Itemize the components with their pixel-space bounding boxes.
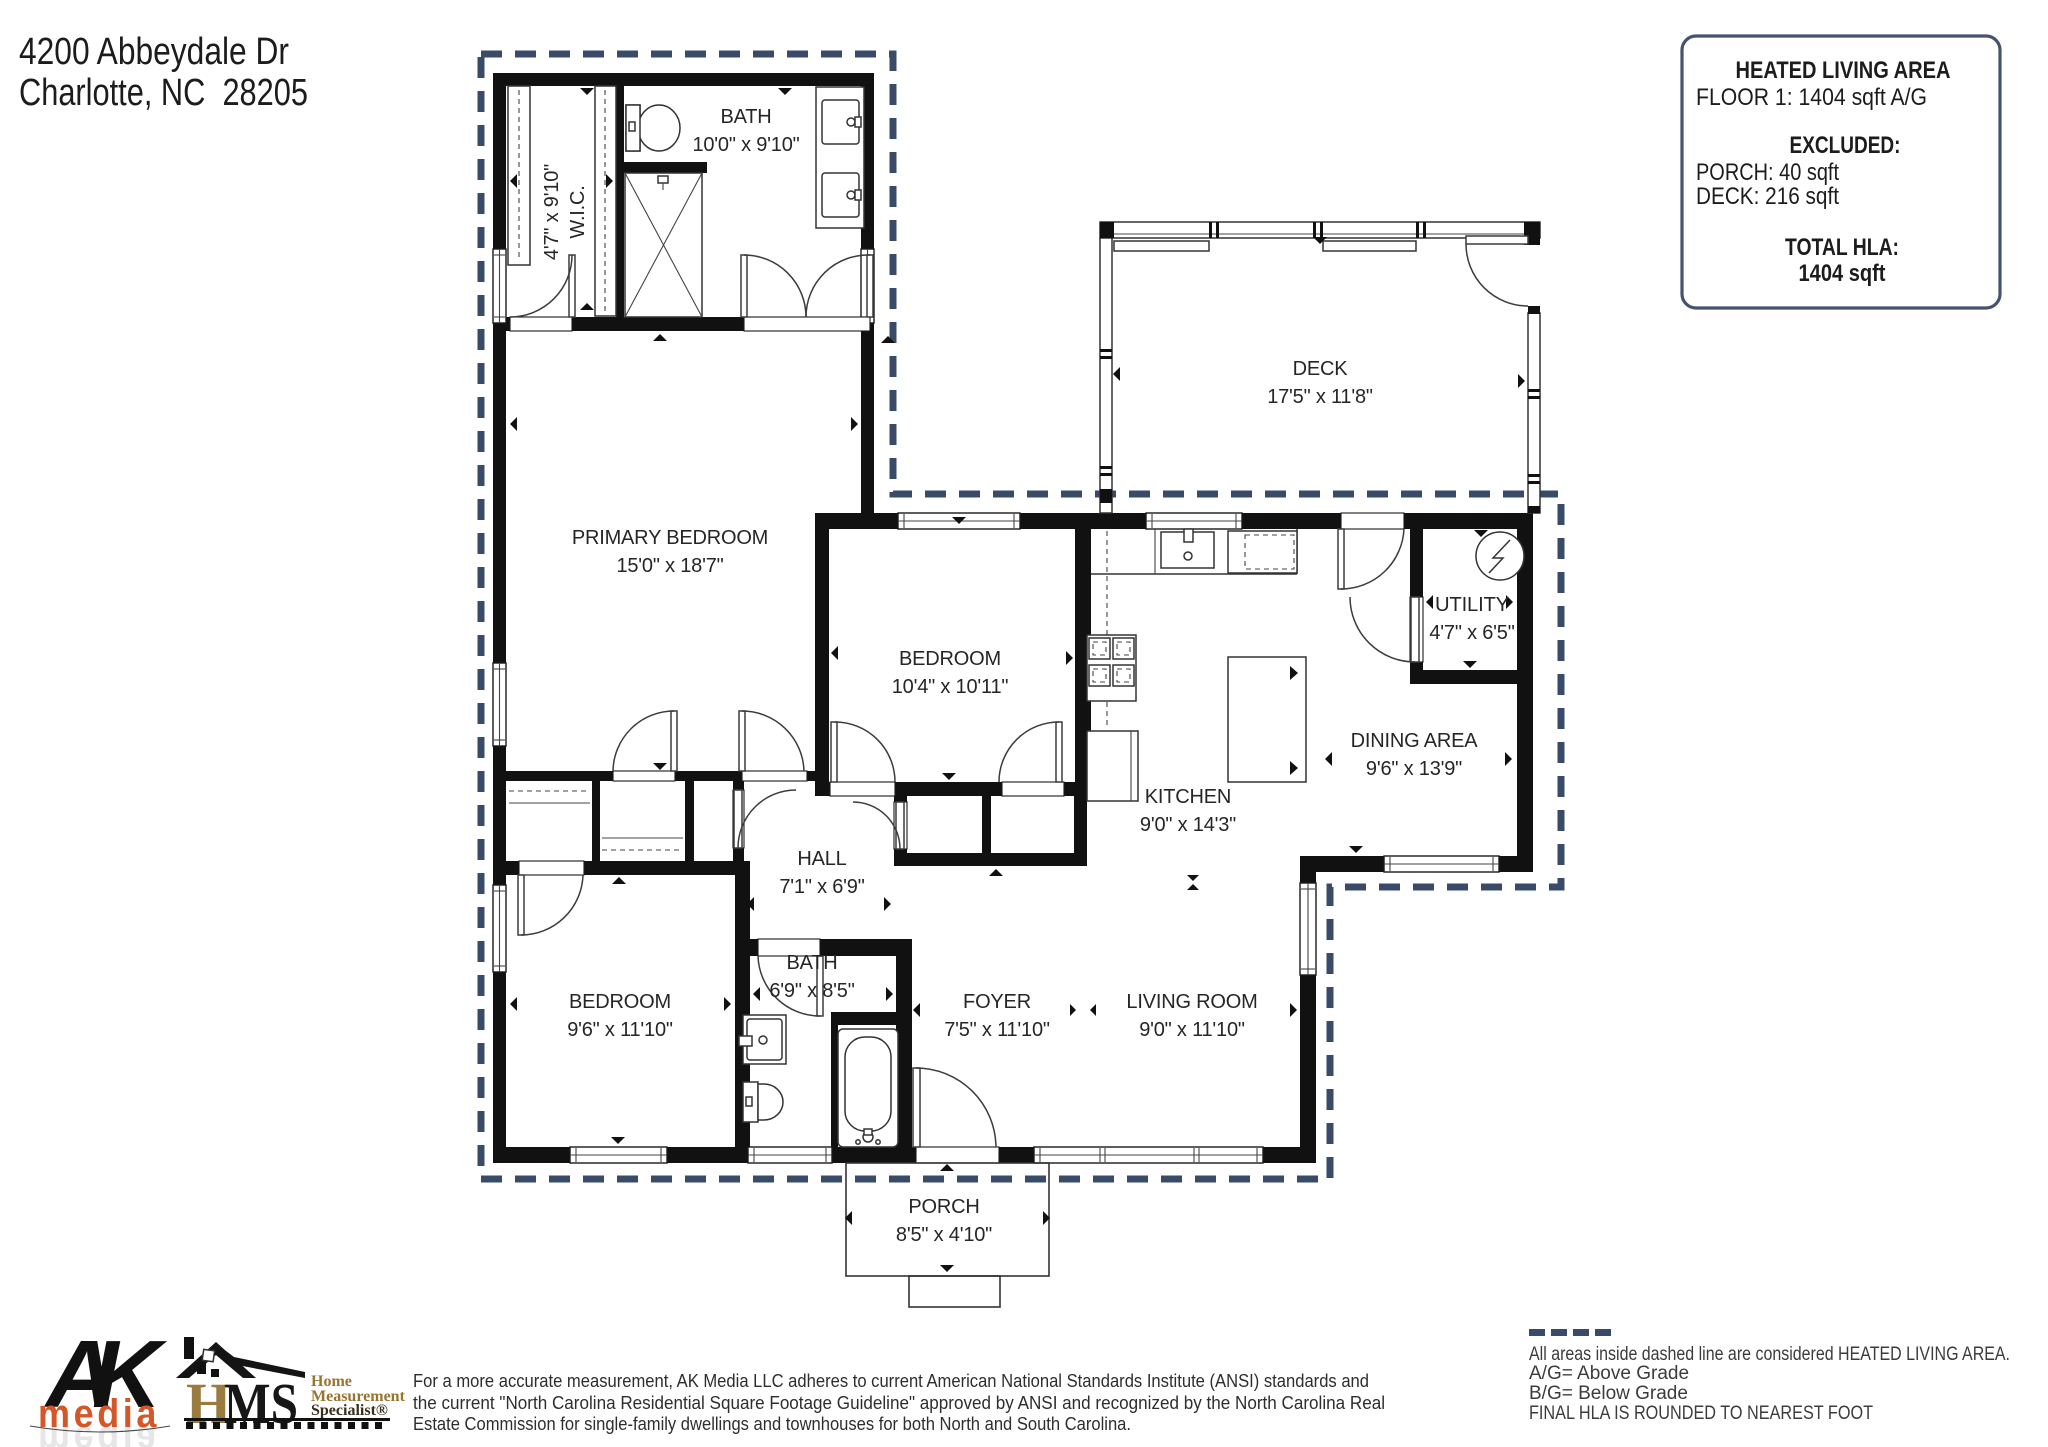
svg-text:EXCLUDED:: EXCLUDED: (1790, 132, 1901, 159)
svg-text:BATH: BATH (786, 952, 837, 974)
svg-text:9'0" x 11'10": 9'0" x 11'10" (1139, 1019, 1245, 1041)
svg-text:4'7" x 6'5": 4'7" x 6'5" (1429, 622, 1514, 644)
svg-text:Specialist®: Specialist® (311, 1402, 388, 1419)
svg-text:4'7" x 9'10": 4'7" x 9'10" (541, 164, 563, 260)
svg-text:BEDROOM: BEDROOM (899, 648, 1001, 670)
svg-text:KITCHEN: KITCHEN (1145, 786, 1231, 808)
svg-text:TOTAL HLA:: TOTAL HLA: (1785, 234, 1899, 261)
svg-text:LIVING ROOM: LIVING ROOM (1126, 991, 1257, 1013)
svg-text:UTILITY: UTILITY (1435, 594, 1509, 616)
svg-text:9'0" x 14'3": 9'0" x 14'3" (1140, 814, 1236, 836)
svg-text:10'0" x 9'10": 10'0" x 9'10" (692, 134, 799, 156)
svg-text:4200 Abbeydale Dr: 4200 Abbeydale Dr (19, 31, 289, 73)
svg-text:17'5" x 11'8": 17'5" x 11'8" (1267, 386, 1373, 408)
svg-text:HEATED LIVING AREA: HEATED LIVING AREA (1736, 57, 1951, 84)
svg-text:All areas inside dashed line a: All areas inside dashed line are conside… (1529, 1344, 2010, 1365)
svg-text:8'5" x 4'10": 8'5" x 4'10" (896, 1224, 992, 1246)
svg-text:For a more accurate measuremen: For a more accurate measurement, AK Medi… (413, 1370, 1369, 1391)
svg-text:DINING AREA: DINING AREA (1351, 730, 1479, 752)
svg-text:7'1" x 6'9": 7'1" x 6'9" (779, 876, 864, 898)
svg-text:BATH: BATH (720, 106, 771, 128)
svg-text:W.I.C.: W.I.C. (567, 185, 589, 238)
svg-text:DECK: DECK (1293, 358, 1349, 380)
svg-text:Estate Commission for single-f: Estate Commission for single-family dwel… (413, 1413, 1131, 1434)
svg-text:1404 sqft: 1404 sqft (1799, 260, 1886, 287)
svg-text:DECK: 216 sqft: DECK: 216 sqft (1696, 183, 1839, 210)
svg-text:B/G= Below Grade: B/G= Below Grade (1529, 1383, 1688, 1404)
svg-text:Charlotte, NC 28205: Charlotte, NC 28205 (19, 72, 308, 114)
svg-text:PRIMARY BEDROOM: PRIMARY BEDROOM (572, 527, 768, 549)
svg-text:15'0" x 18'7": 15'0" x 18'7" (616, 555, 723, 577)
svg-text:PORCH: 40 sqft: PORCH: 40 sqft (1696, 159, 1839, 186)
svg-text:A/G= Above Grade: A/G= Above Grade (1529, 1363, 1689, 1384)
svg-text:7'5" x 11'10": 7'5" x 11'10" (944, 1019, 1050, 1041)
svg-text:9'6" x 13'9": 9'6" x 13'9" (1366, 758, 1462, 780)
svg-text:BEDROOM: BEDROOM (569, 991, 671, 1013)
svg-text:FLOOR 1: 1404 sqft A/G: FLOOR 1: 1404 sqft A/G (1696, 84, 1927, 111)
svg-text:the current "North Carolina Re: the current "North Carolina Residential … (413, 1392, 1385, 1413)
svg-text:10'4" x 10'11": 10'4" x 10'11" (892, 676, 1009, 698)
svg-text:FOYER: FOYER (963, 991, 1031, 1013)
svg-text:FINAL HLA IS ROUNDED TO NEARES: FINAL HLA IS ROUNDED TO NEAREST FOOT (1529, 1403, 1873, 1424)
svg-text:HALL: HALL (797, 848, 846, 870)
svg-text:6'9" x 8'5": 6'9" x 8'5" (769, 980, 854, 1002)
svg-text:9'6" x 11'10": 9'6" x 11'10" (567, 1019, 673, 1041)
svg-text:PORCH: PORCH (908, 1196, 979, 1218)
